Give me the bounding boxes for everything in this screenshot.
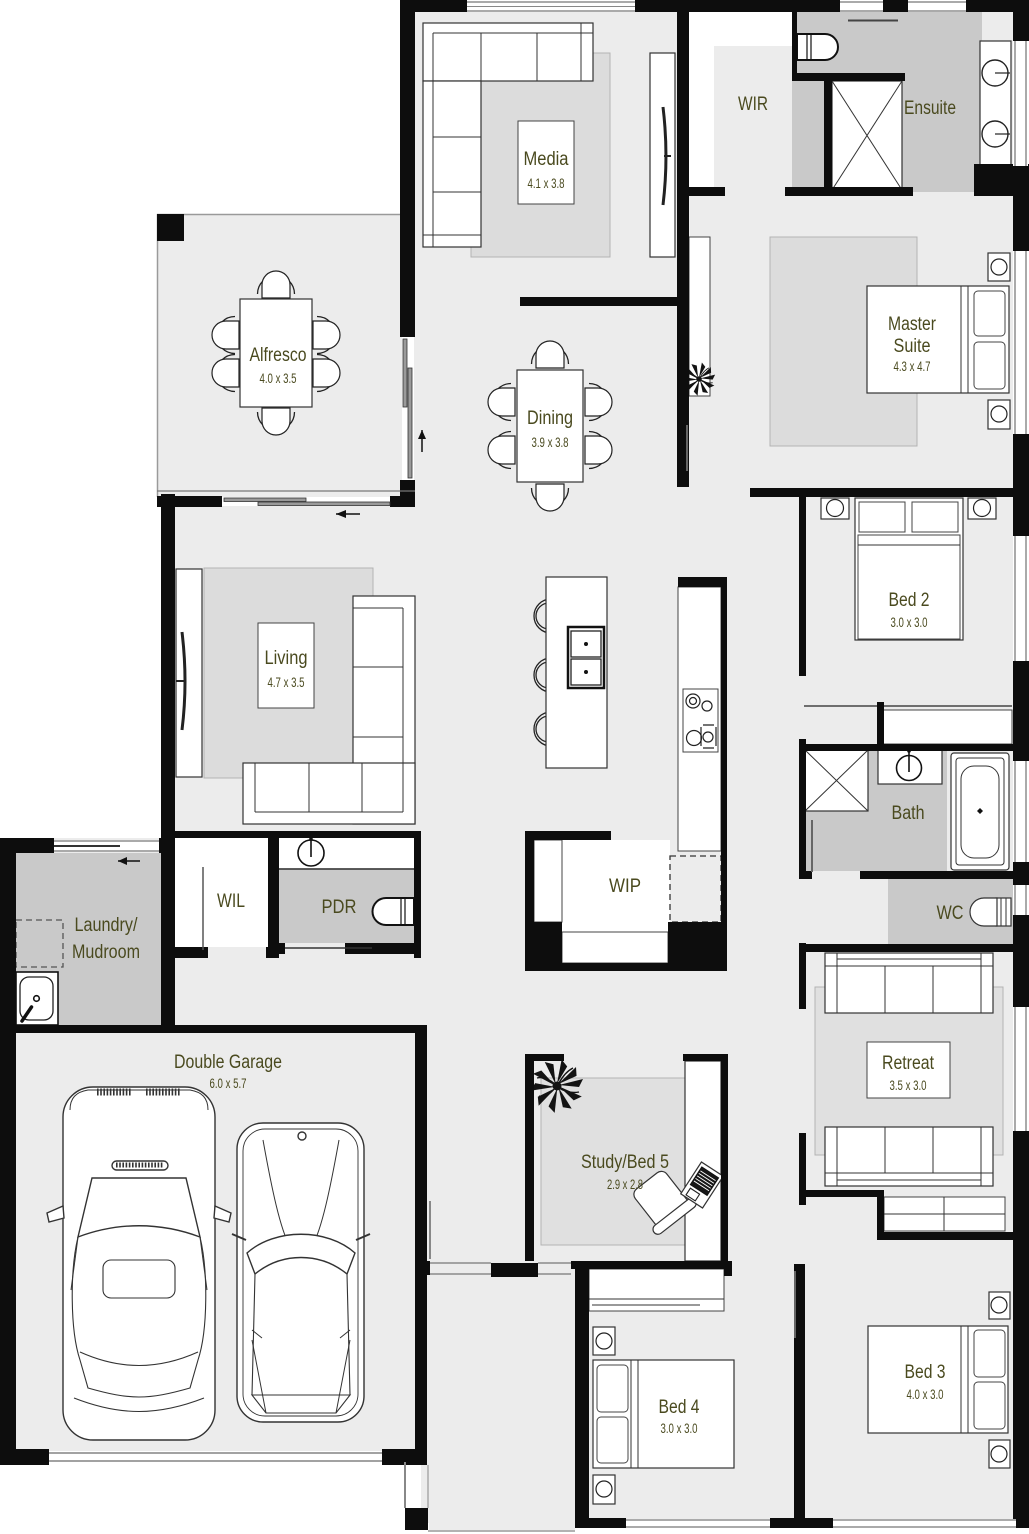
svg-text:Ensuite: Ensuite bbox=[904, 98, 956, 119]
svg-text:Bed 4: Bed 4 bbox=[659, 1397, 700, 1418]
svg-text:4.7 x 3.5: 4.7 x 3.5 bbox=[268, 675, 305, 690]
svg-text:WIP: WIP bbox=[609, 876, 641, 897]
svg-text:Master: Master bbox=[888, 314, 937, 335]
svg-text:WIL: WIL bbox=[217, 891, 245, 912]
svg-text:4.3 x 4.7: 4.3 x 4.7 bbox=[894, 359, 931, 374]
svg-text:3.5 x 3.0: 3.5 x 3.0 bbox=[890, 1078, 927, 1093]
svg-text:3.0 x 3.0: 3.0 x 3.0 bbox=[661, 1421, 698, 1436]
svg-text:4.0 x 3.5: 4.0 x 3.5 bbox=[260, 371, 297, 386]
svg-text:2.9 x 2.8: 2.9 x 2.8 bbox=[607, 1177, 643, 1192]
svg-text:Dining: Dining bbox=[527, 408, 573, 429]
svg-text:Study/Bed 5: Study/Bed 5 bbox=[581, 1152, 669, 1173]
svg-text:Bed 3: Bed 3 bbox=[905, 1362, 946, 1383]
svg-text:Laundry/: Laundry/ bbox=[75, 915, 139, 936]
svg-text:Living: Living bbox=[265, 648, 308, 669]
svg-text:Bath: Bath bbox=[892, 803, 925, 824]
svg-text:WIR: WIR bbox=[738, 94, 768, 115]
svg-text:Retreat: Retreat bbox=[882, 1053, 935, 1074]
svg-text:4.0 x 3.0: 4.0 x 3.0 bbox=[907, 1387, 944, 1402]
svg-text:Alfresco: Alfresco bbox=[250, 345, 307, 366]
svg-text:Suite: Suite bbox=[894, 336, 931, 357]
svg-text:WC: WC bbox=[937, 903, 964, 924]
svg-text:3.9 x 3.8: 3.9 x 3.8 bbox=[532, 435, 569, 450]
svg-text:4.1 x 3.8: 4.1 x 3.8 bbox=[528, 176, 565, 191]
svg-text:PDR: PDR bbox=[322, 897, 357, 918]
svg-text:Media: Media bbox=[524, 149, 569, 170]
svg-text:Bed 2: Bed 2 bbox=[889, 590, 930, 611]
svg-text:Mudroom: Mudroom bbox=[72, 942, 140, 963]
svg-text:6.0 x 5.7: 6.0 x 5.7 bbox=[210, 1076, 247, 1091]
svg-text:Double Garage: Double Garage bbox=[174, 1052, 282, 1073]
svg-text:3.0 x 3.0: 3.0 x 3.0 bbox=[891, 615, 928, 630]
